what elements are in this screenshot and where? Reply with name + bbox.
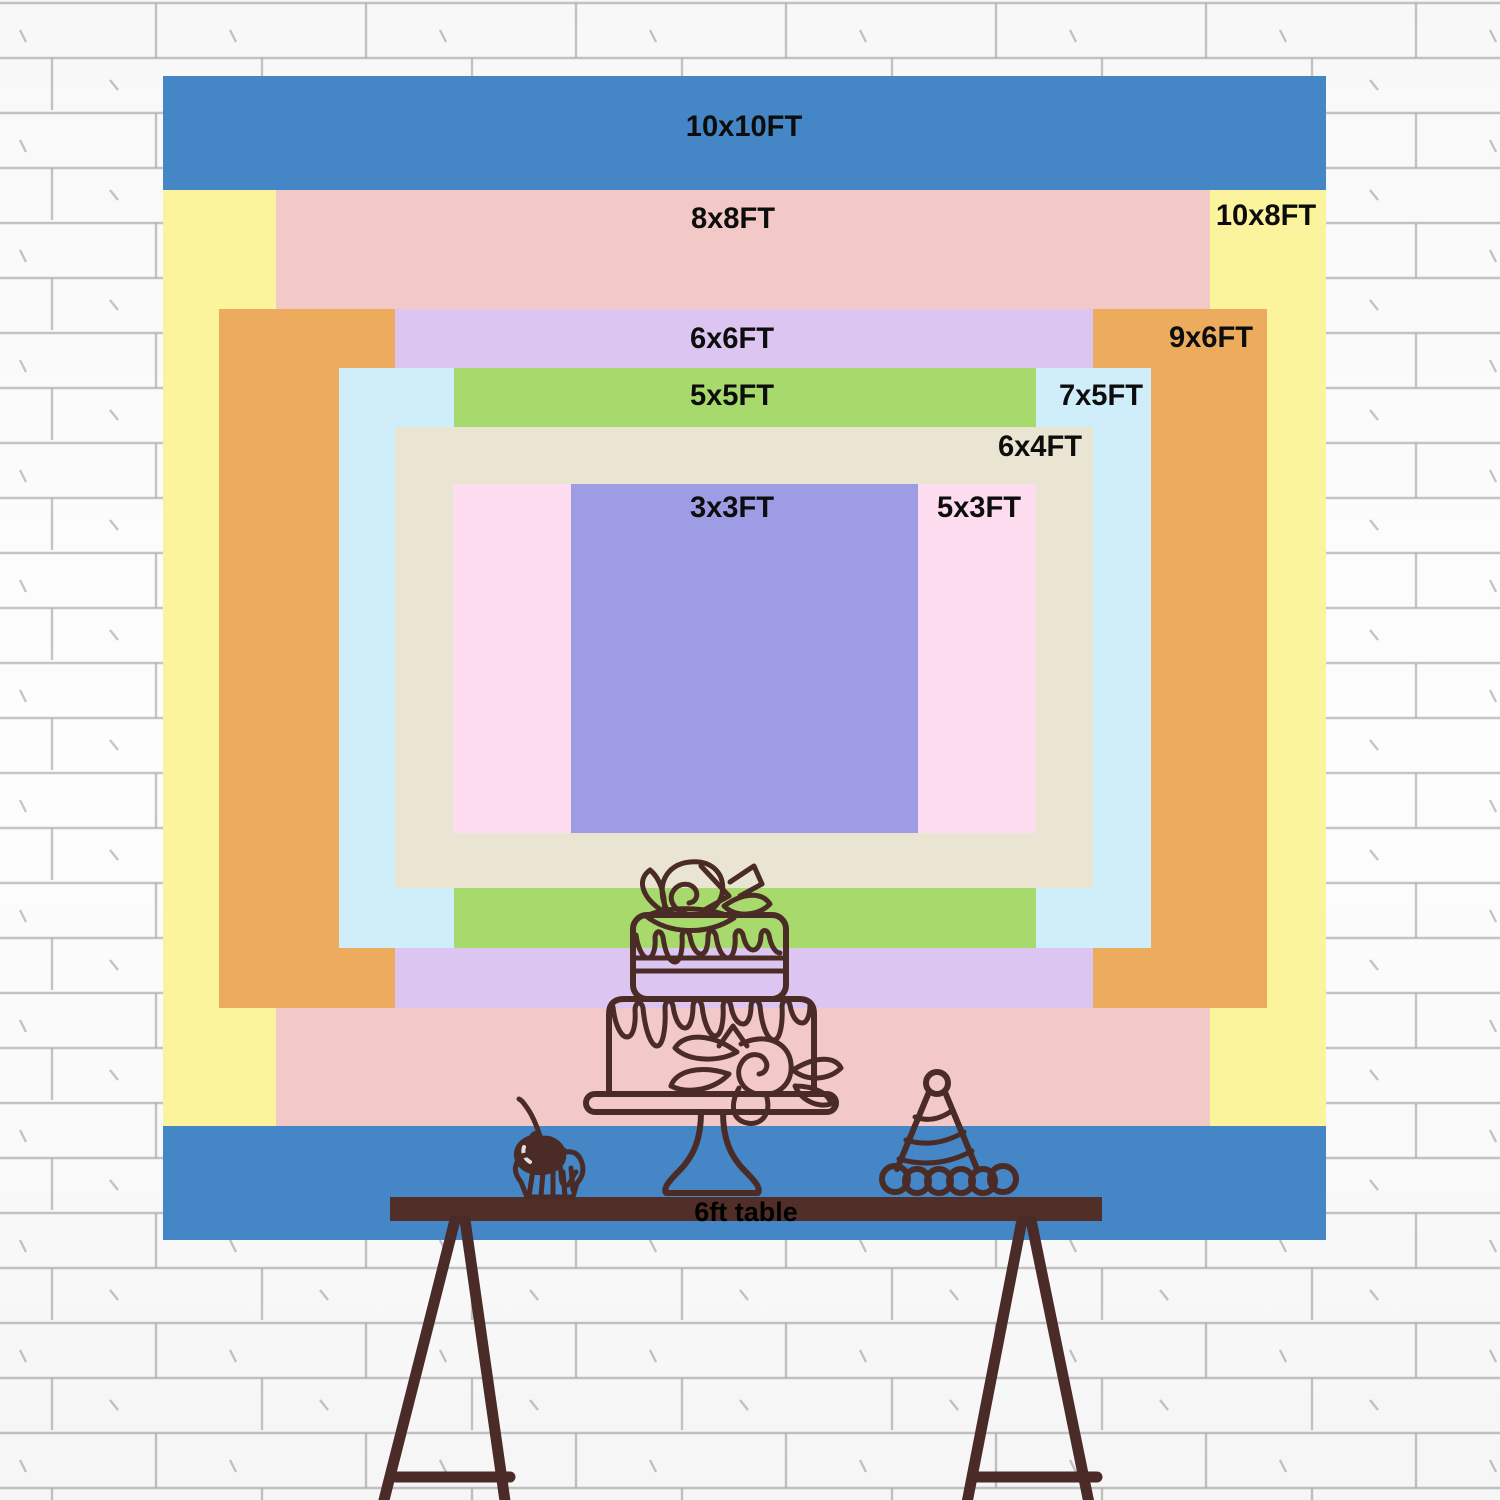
size-label-6x4ft: 6x4FT	[998, 430, 1082, 464]
size-rect-3x3ft	[571, 484, 918, 833]
size-label-9x6ft: 9x6FT	[1169, 321, 1253, 355]
size-label-8x8ft: 8x8FT	[691, 202, 775, 236]
size-label-5x3ft: 5x3FT	[937, 491, 1021, 525]
size-label-5x5ft: 5x5FT	[690, 379, 774, 413]
size-label-3x3ft: 3x3FT	[690, 491, 774, 525]
size-label-7x5ft: 7x5FT	[1059, 379, 1143, 413]
size-label-6x6ft: 6x6FT	[690, 322, 774, 356]
size-label-10x10ft: 10x10FT	[686, 110, 802, 144]
table-label: 6ft table	[694, 1199, 798, 1226]
table-top: 6ft table	[390, 1197, 1102, 1221]
backdrop-size-chart: 10x10FT 10x8FT 8x8FT 9x6FT 6x6FT 7x5FT 5…	[0, 0, 1500, 1500]
size-label-10x8ft: 10x8FT	[1216, 199, 1316, 233]
